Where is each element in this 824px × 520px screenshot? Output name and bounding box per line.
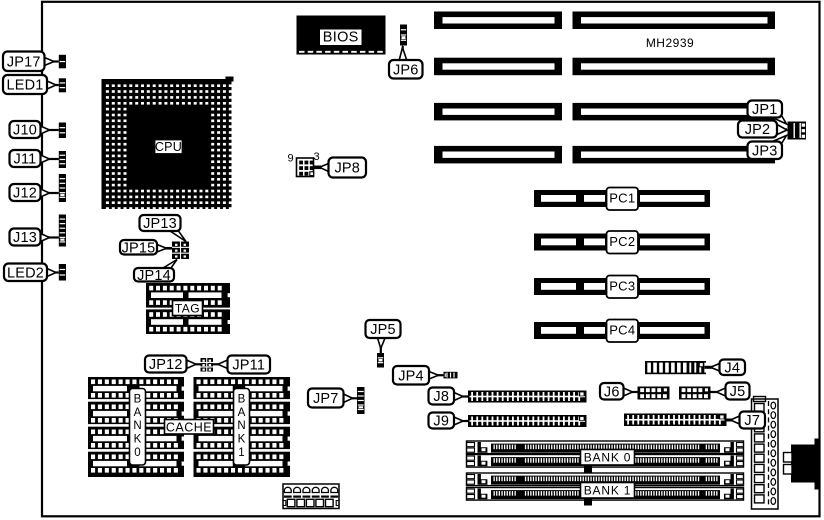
svg-text:JP15: JP15 [122,240,156,256]
svg-text:MH2939: MH2939 [646,36,694,50]
svg-text:PC2: PC2 [609,234,635,249]
svg-text:JP2: JP2 [745,122,771,138]
svg-text:PC1: PC1 [609,191,635,206]
svg-text:JP5: JP5 [370,322,396,338]
svg-text:PC3: PC3 [609,279,635,294]
svg-text:BANK 0: BANK 0 [584,451,632,465]
svg-text:K: K [134,434,142,446]
svg-text:JP3: JP3 [752,143,778,159]
svg-text:J12: J12 [13,186,37,202]
svg-text:9: 9 [287,153,293,165]
svg-text:JP13: JP13 [143,216,177,232]
svg-text:J5: J5 [730,384,746,400]
svg-text:J9: J9 [433,414,449,430]
svg-text:JP7: JP7 [313,391,339,407]
svg-text:1: 1 [238,447,244,459]
svg-text:K: K [238,434,246,446]
svg-text:JP17: JP17 [7,54,41,70]
svg-text:J11: J11 [14,152,37,168]
svg-text:JP8: JP8 [334,161,360,177]
svg-text:LED1: LED1 [6,78,43,94]
svg-text:JP11: JP11 [232,358,265,374]
svg-text:JP14: JP14 [137,268,171,284]
svg-text:A: A [134,407,142,419]
svg-text:J7: J7 [744,413,760,429]
svg-text:A: A [238,407,246,419]
svg-text:BANK 1: BANK 1 [584,484,632,498]
svg-text:JP6: JP6 [393,62,419,78]
svg-text:N: N [237,420,245,432]
svg-text:B: B [134,394,142,406]
svg-text:0: 0 [134,447,140,459]
svg-text:J10: J10 [13,123,37,139]
svg-text:CACHE: CACHE [166,421,212,435]
svg-text:J8: J8 [433,389,449,405]
svg-text:TAG: TAG [175,302,200,316]
svg-text:N: N [133,420,141,432]
svg-text:PC4: PC4 [609,323,635,338]
svg-text:B: B [238,394,246,406]
svg-text:JP12: JP12 [149,357,183,373]
svg-text:J13: J13 [13,230,37,246]
svg-text:CPU: CPU [155,140,182,154]
svg-text:JP1: JP1 [752,102,778,118]
svg-text:J6: J6 [604,384,620,400]
svg-text:JP4: JP4 [398,368,424,384]
svg-text:3: 3 [313,151,319,163]
svg-text:J4: J4 [724,360,740,376]
svg-text:LED2: LED2 [7,265,44,281]
svg-text:BIOS: BIOS [323,30,359,46]
